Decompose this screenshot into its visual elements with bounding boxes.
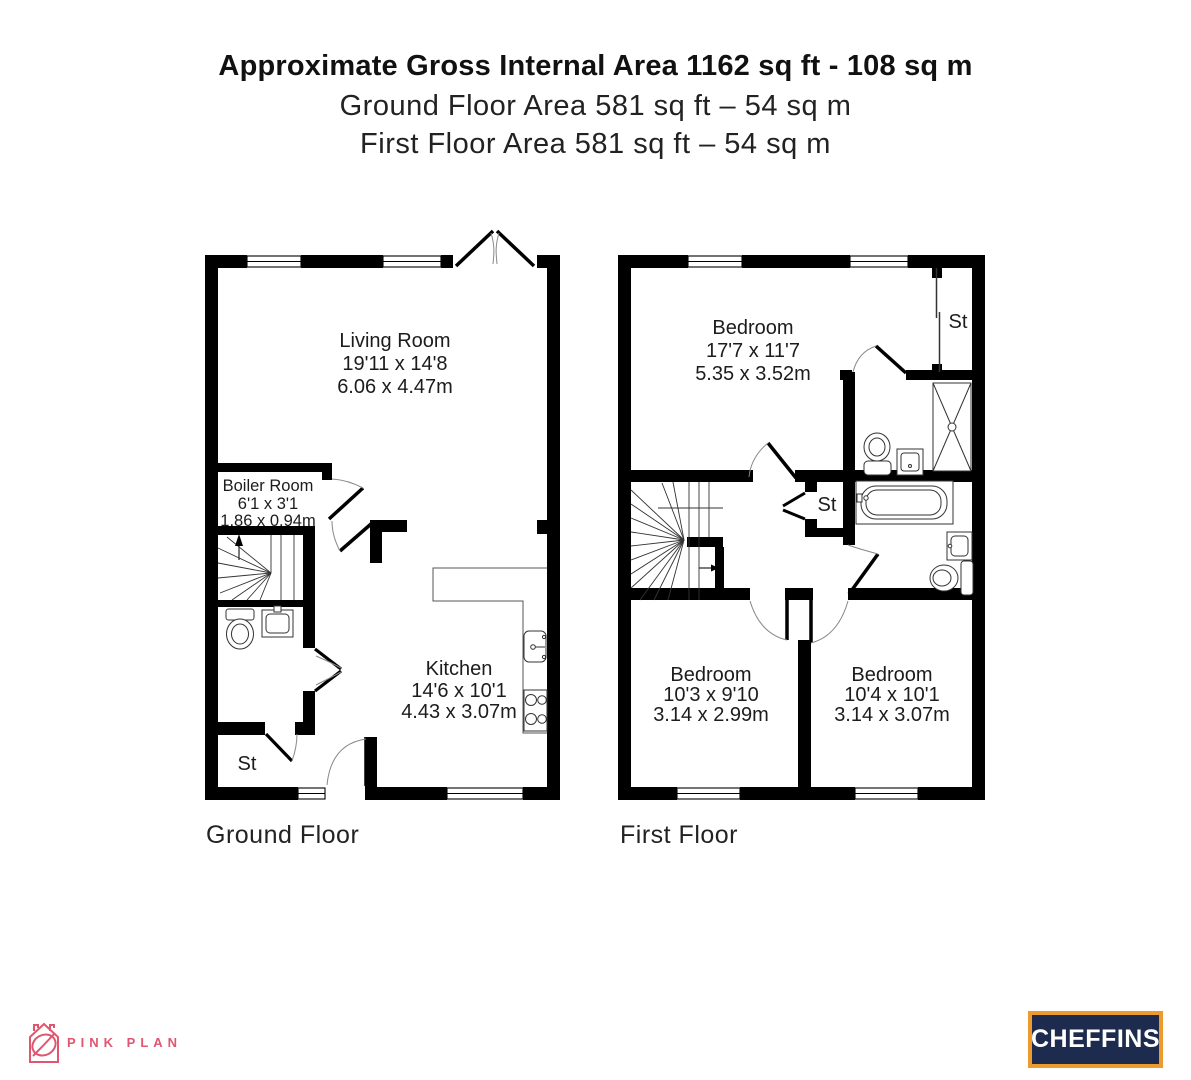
- gf-boiler-room-imperial: 6'1 x 3'1: [238, 495, 298, 513]
- first-floor-plan: Bedroom 17'7 x 11'7 5.35 x 3.52m St St B…: [618, 255, 985, 800]
- ff-bedroom-right-metric: 3.14 x 3.07m: [834, 704, 950, 726]
- gf-kitchen-name: Kitchen: [426, 658, 493, 680]
- ff-bedroom-left-door: [750, 600, 787, 640]
- gf-labels: Living Room 19'11 x 14'8 6.06 x 4.47m Bo…: [220, 330, 517, 775]
- ff-bathroom-door: [848, 545, 878, 594]
- ff-bedroom-left-name: Bedroom: [670, 664, 751, 686]
- gf-living-room-imperial: 19'11 x 14'8: [342, 353, 447, 375]
- gf-boiler-door: [329, 479, 363, 519]
- ff-bedroom-main-name: Bedroom: [712, 317, 793, 339]
- ff-shower-room-door: [853, 346, 906, 373]
- gf-wc-sink: [262, 606, 293, 637]
- ff-shower-room-toilet: [864, 433, 891, 475]
- gf-kitchen-hob: [524, 690, 547, 731]
- ff-shower: [933, 383, 971, 471]
- ff-bath: [856, 481, 953, 524]
- ff-bedroom-main-door: [749, 443, 796, 478]
- gf-wc-door: [315, 649, 341, 691]
- ff-bedroom-left-imperial: 10'3 x 9'10: [663, 684, 759, 706]
- gf-french-doors: [456, 231, 534, 266]
- gf-stairs: [218, 534, 294, 600]
- ff-bedroom-right-name: Bedroom: [851, 664, 932, 686]
- pink-plan-house-icon: [27, 1018, 67, 1068]
- gf-boiler-room-metric: 1.86 x 0.94m: [220, 512, 315, 530]
- ff-bedroom-right-imperial: 10'4 x 10'1: [844, 684, 940, 706]
- floorplan-drawing: Living Room 19'11 x 14'8 6.06 x 4.47m Bo…: [0, 0, 1191, 1080]
- gf-hall-door: [332, 521, 371, 551]
- ff-bedroom-main-imperial: 17'7 x 11'7: [706, 340, 800, 362]
- gf-boiler-room-name: Boiler Room: [223, 477, 314, 495]
- ff-fixtures: [856, 383, 973, 595]
- ff-store-partition: [937, 268, 940, 372]
- gf-living-room-name: Living Room: [339, 330, 450, 352]
- gf-kitchen-sink: [524, 631, 546, 662]
- pink-plan-logo: PINK PLAN: [27, 1018, 247, 1068]
- cheffins-text: CHEFFINS: [1031, 1025, 1160, 1054]
- ff-bedroom-main-metric: 5.35 x 3.52m: [695, 363, 811, 385]
- gf-store-door: [266, 734, 297, 761]
- ff-store-top-label: St: [949, 311, 968, 333]
- gf-store-label: St: [238, 753, 257, 775]
- floorplan-page: Approximate Gross Internal Area 1162 sq …: [0, 0, 1191, 1080]
- ff-bathroom-sink: [947, 532, 972, 560]
- first-floor-label: First Floor: [620, 821, 738, 850]
- ff-bedroom-right-door: [811, 600, 848, 643]
- ff-store-landing-label: St: [818, 494, 837, 516]
- ground-floor-label: Ground Floor: [206, 821, 359, 850]
- ff-bedroom-left-metric: 3.14 x 2.99m: [653, 704, 769, 726]
- ff-shower-room-sink: [897, 449, 923, 475]
- cheffins-logo: CHEFFINS: [1028, 1011, 1163, 1068]
- gf-front-door: [327, 737, 366, 786]
- ground-floor-plan: Living Room 19'11 x 14'8 6.06 x 4.47m Bo…: [205, 231, 560, 800]
- gf-wc-toilet: [226, 609, 254, 649]
- pink-plan-text: PINK PLAN: [67, 1035, 182, 1050]
- gf-living-room-metric: 6.06 x 4.47m: [337, 376, 453, 398]
- gf-kitchen-imperial: 14'6 x 10'1: [411, 680, 507, 702]
- gf-kitchen-metric: 4.43 x 3.07m: [401, 701, 517, 723]
- ff-store-landing-door: [783, 493, 805, 519]
